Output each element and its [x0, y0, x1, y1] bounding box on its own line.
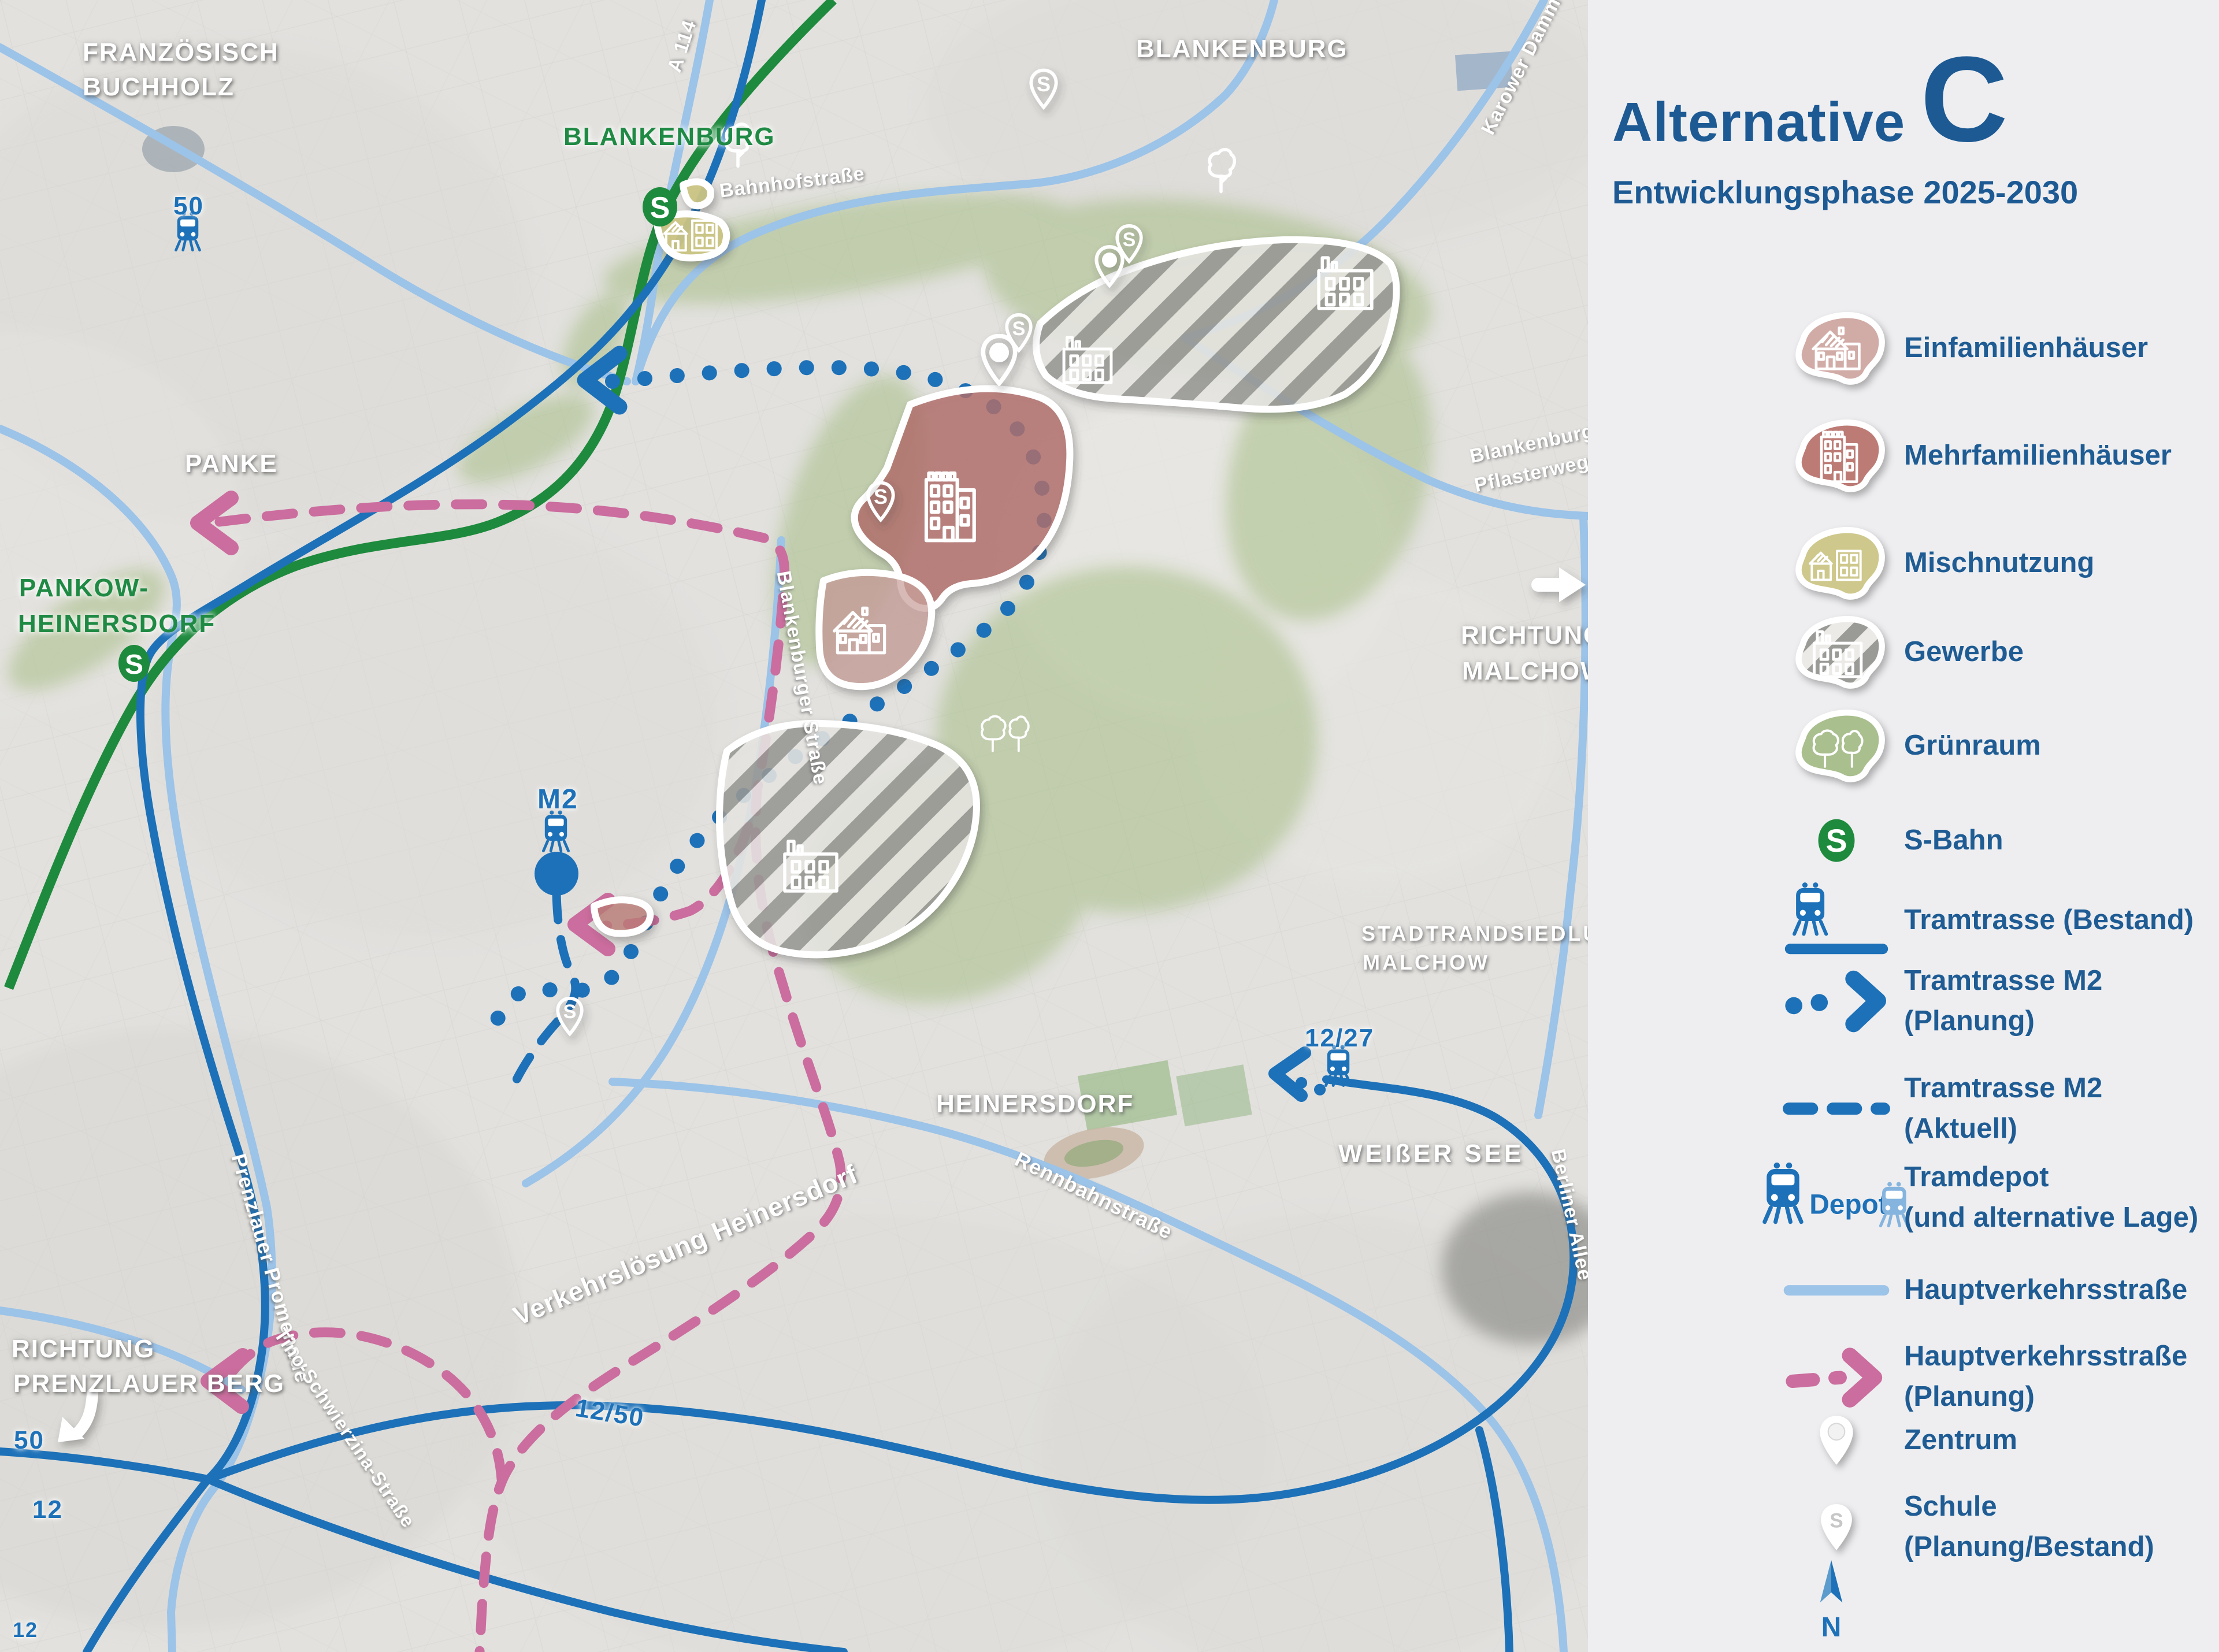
compass: N: [1814, 1558, 1848, 1643]
label-blankenburg-green: BLANKENBURG: [563, 122, 775, 151]
legend-label: Mehrfamilienhäuser: [1904, 436, 2172, 476]
tram-m2-planung-icon: [1779, 946, 1894, 1056]
svg-text:S: S: [125, 649, 143, 680]
legend-label-2: (und alternative Lage): [1904, 1198, 2198, 1238]
legend-label: Zentrum: [1904, 1420, 2017, 1461]
map-canvas: S S S: [0, 0, 1588, 1652]
tramdepot-icon: Depot: [1761, 1143, 1912, 1253]
legend-item-tramdepot: Depot Tramdepot(und alternative Lage): [1588, 1143, 2219, 1253]
label-pankow-heinersdorf: PANKOW-: [19, 574, 149, 603]
sbahn-logo-blankenburg: S: [643, 187, 677, 227]
tram-depot-icon: [1765, 1163, 1801, 1222]
label-tram-50: 50: [173, 192, 204, 221]
legend-item-zentrum: Zentrum: [1588, 1397, 2219, 1484]
label-heinersdorf: HEINERSDORF: [936, 1090, 1134, 1119]
svg-text:S: S: [650, 191, 670, 225]
label-richtung-prenzlauer-berg: RICHTUNG: [12, 1335, 155, 1364]
label-panke: PANKE: [185, 450, 278, 478]
zentrum-pin-icon: [1779, 1397, 1894, 1484]
legend-title: Alternative C: [1612, 51, 2008, 154]
legend-subtitle: Entwicklungsphase 2025-2030: [1612, 173, 2078, 211]
legend-item-einfamilienhaeuser: Einfamilienhäuser: [1588, 294, 2219, 403]
legend-item-gruenraum: Grünraum: [1588, 691, 2219, 801]
label-blankenburg: BLANKENBURG: [1136, 35, 1348, 64]
legend-label: Tramdepot: [1904, 1157, 2198, 1198]
legend-label: Grünraum: [1904, 726, 2041, 766]
svg-text:S: S: [1830, 1509, 1843, 1532]
label-richtung-malchow-2: MALCHOW: [1462, 657, 1588, 686]
legend-label: Hauptverkehrsstraße: [1904, 1337, 2187, 1377]
chevron-right-icon: [1854, 979, 1878, 1024]
legend-label: Tramtrasse (Bestand): [1904, 900, 2194, 941]
legend-label: Hauptverkehrsstraße: [1904, 1270, 2187, 1311]
legend-label: Schule: [1904, 1487, 2154, 1527]
legend-label: Tramtrasse M2: [1904, 1068, 2102, 1109]
svg-text:S: S: [1825, 823, 1847, 859]
label-franzoesisch-buchholz-2: BUCHHOLZ: [83, 73, 235, 102]
compass-north-label: N: [1821, 1612, 1842, 1643]
label-tram-12: 12: [32, 1495, 63, 1524]
legend-label-2: (Planung): [1904, 1001, 2102, 1042]
label-richtung-prenzlauer-berg-2: PRENZLAUER BERG: [13, 1369, 285, 1398]
legend-item-hauptverkehrsstrasse: Hauptverkehrsstraße: [1588, 1253, 2219, 1328]
label-tram-12-27: 12/27: [1305, 1024, 1374, 1053]
label-stadtrandsiedlung: STADTRANDSIEDLUNG: [1361, 922, 1588, 946]
legend-panel: Alternative C Entwicklungsphase 2025-203…: [1588, 0, 2219, 1652]
label-weisser-see: WEIßER SEE: [1338, 1139, 1524, 1168]
legend-item-schule: S Schule(Planung/Bestand): [1588, 1472, 2219, 1582]
legend-item-tram-m2-planung: Tramtrasse M2(Planung): [1588, 946, 2219, 1056]
alternative-c-planning-map: S S S: [0, 0, 2219, 1652]
legend-label-2: (Planung/Bestand): [1904, 1527, 2154, 1568]
legend-label: Einfamilienhäuser: [1904, 328, 2148, 369]
depot-label: Depot: [1809, 1190, 1888, 1220]
legend-label: Mischnutzung: [1904, 543, 2094, 584]
sbahn-logo-pankow: S: [118, 645, 150, 682]
label-franzoesisch-buchholz: FRANZÖSISCH: [83, 38, 279, 67]
label-stadtrandsiedlung-2: MALCHOW: [1363, 951, 1490, 975]
north-arrow-icon: [1814, 1558, 1848, 1608]
gruenraum-swatch: [1779, 691, 1894, 801]
label-tram-m2: M2: [537, 784, 578, 815]
svg-text:S: S: [1037, 72, 1051, 96]
label-pankow-heinersdorf-2: HEINERSDORF: [18, 610, 216, 638]
label-tram-50-sued: 50: [14, 1426, 44, 1455]
legend-title-text: Alternative: [1612, 91, 1905, 154]
tram-depot-dot: [535, 852, 578, 896]
legend-label: Tramtrasse M2: [1904, 961, 2102, 1001]
legend-label: Gewerbe: [1904, 632, 2024, 673]
label-richtung-malchow: RICHTUNG: [1461, 621, 1588, 650]
map-graphics: S S S: [0, 0, 1588, 1652]
svg-text:S: S: [563, 1001, 577, 1023]
svg-text:S: S: [1012, 318, 1026, 340]
svg-text:S: S: [874, 485, 888, 508]
svg-text:S: S: [1123, 229, 1136, 251]
area-mischnutzung-klein: [683, 182, 711, 206]
legend-title-letter: C: [1920, 51, 2008, 148]
area-einfamilienhaeuser-klein: [594, 900, 650, 933]
einfamilienhaeuser-swatch: [1779, 294, 1894, 403]
legend-label: S-Bahn: [1904, 821, 2003, 861]
label-tram-12-edge: 12: [13, 1618, 38, 1642]
legend-item-mehrfamilienhaeuser: Mehrfamilienhäuser: [1588, 401, 2219, 511]
mehrfamilienhaeuser-swatch: [1779, 401, 1894, 511]
pink-chevron-right-icon: [1850, 1356, 1874, 1399]
hauptverkehrsstrasse-icon: [1779, 1253, 1894, 1328]
